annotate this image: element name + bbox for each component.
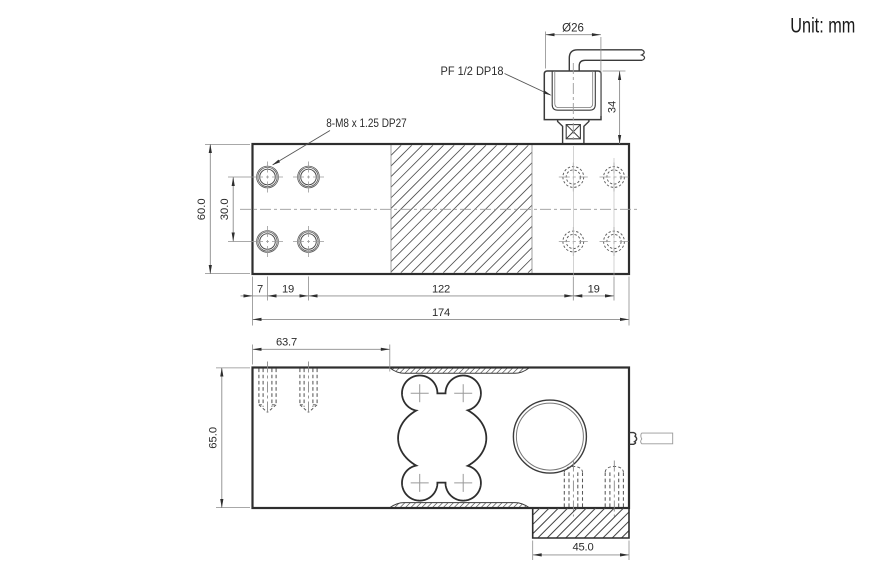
svg-text:Unit: mm: Unit: mm <box>790 14 855 38</box>
svg-text:19: 19 <box>282 283 294 295</box>
svg-text:30.0: 30.0 <box>219 198 231 220</box>
svg-text:19: 19 <box>588 283 600 295</box>
svg-text:63.7: 63.7 <box>276 336 297 348</box>
svg-text:122: 122 <box>432 283 450 295</box>
svg-text:Ø26: Ø26 <box>562 23 584 35</box>
svg-text:7: 7 <box>257 283 263 295</box>
svg-text:34: 34 <box>606 101 618 113</box>
svg-text:45.0: 45.0 <box>573 542 594 554</box>
svg-text:65.0: 65.0 <box>208 427 220 449</box>
svg-text:60.0: 60.0 <box>196 198 208 220</box>
svg-text:PF 1/2 DP18: PF 1/2 DP18 <box>441 64 504 78</box>
svg-text:8-M8 x 1.25 DP27: 8-M8 x 1.25 DP27 <box>326 116 407 130</box>
svg-text:174: 174 <box>432 307 450 319</box>
